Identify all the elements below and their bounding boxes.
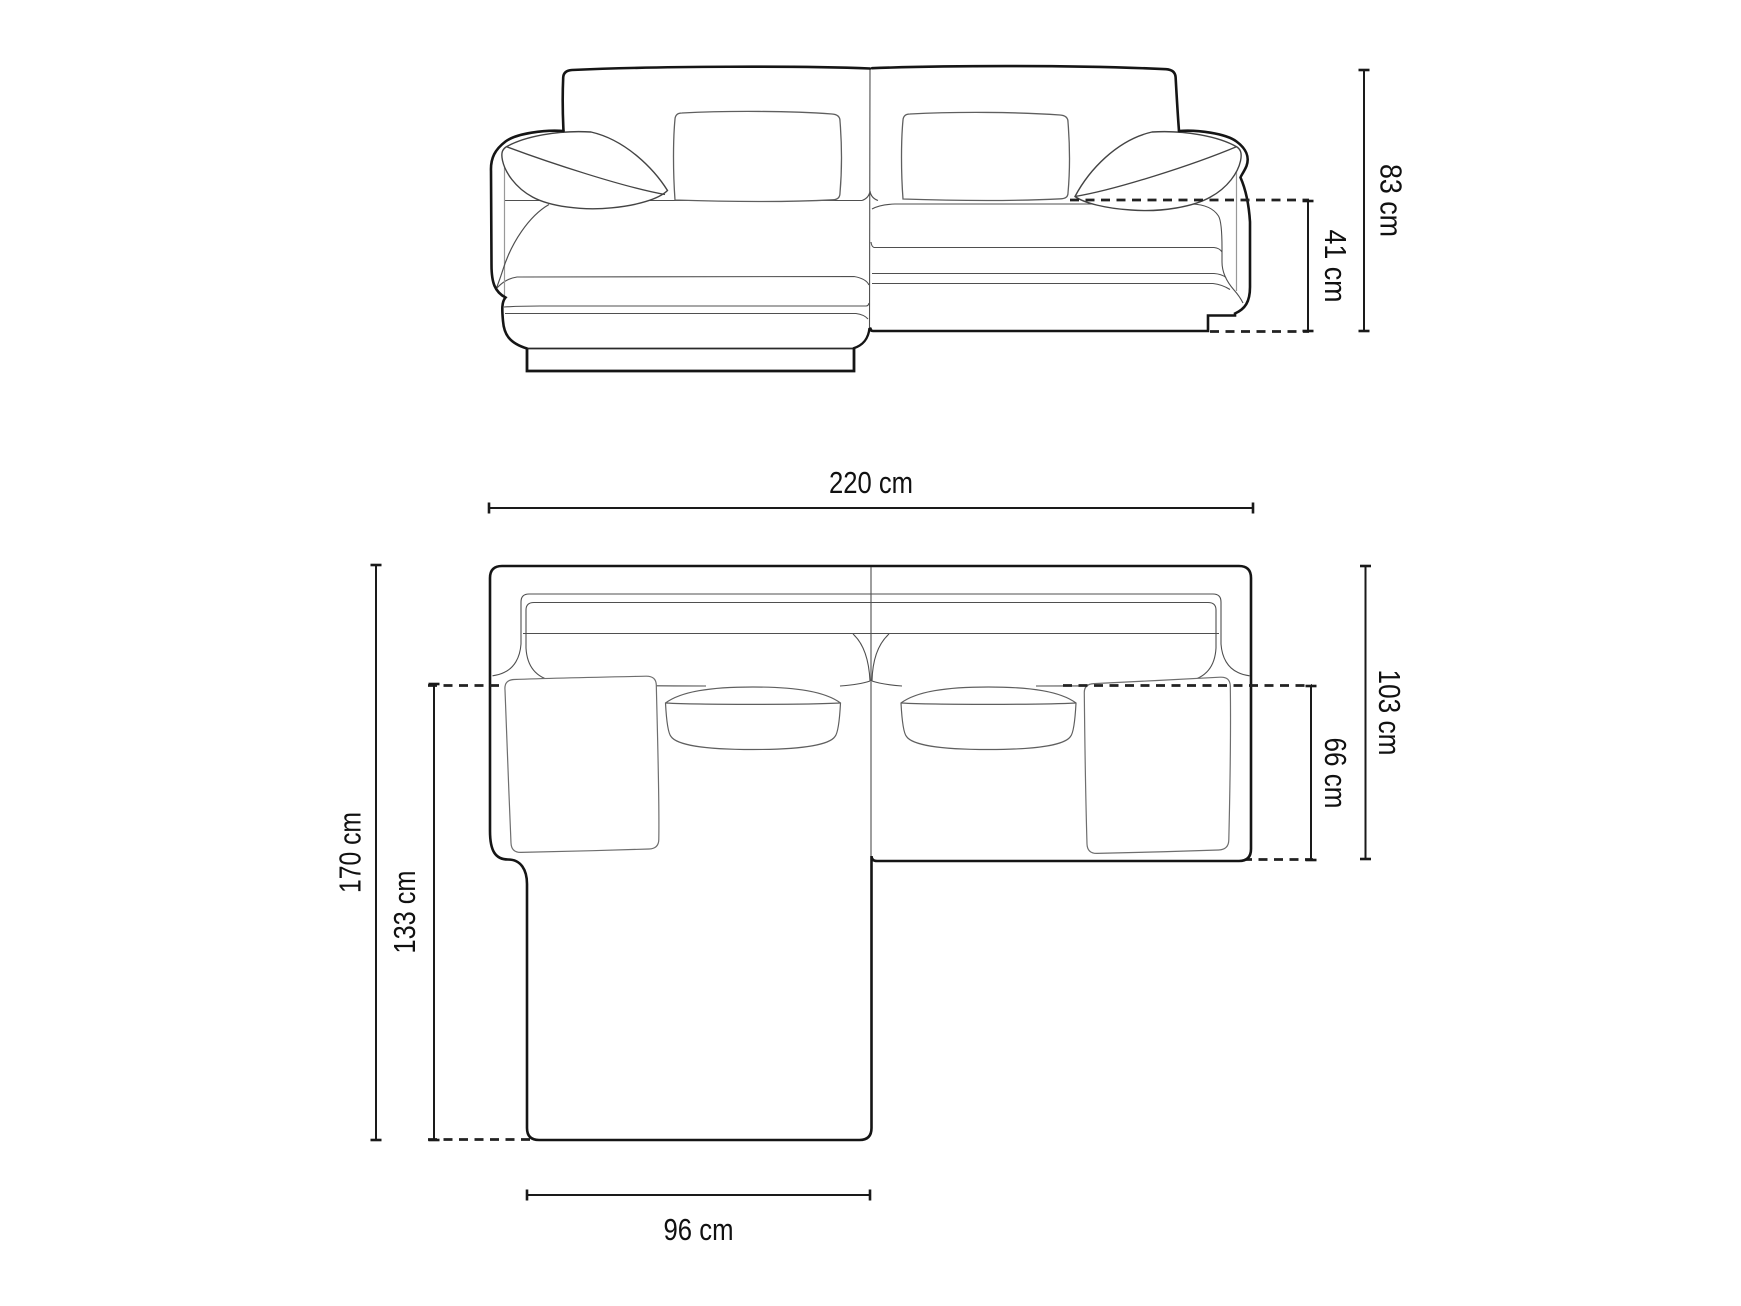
svg-text:103 cm: 103 cm (1372, 670, 1407, 756)
svg-text:66 cm: 66 cm (1318, 738, 1353, 809)
svg-text:41 cm: 41 cm (1318, 230, 1353, 303)
svg-text:220 cm: 220 cm (829, 465, 913, 500)
svg-text:133 cm: 133 cm (387, 871, 422, 954)
svg-text:83 cm: 83 cm (1374, 164, 1409, 237)
svg-text:96 cm: 96 cm (664, 1212, 734, 1247)
svg-text:170 cm: 170 cm (333, 812, 368, 893)
